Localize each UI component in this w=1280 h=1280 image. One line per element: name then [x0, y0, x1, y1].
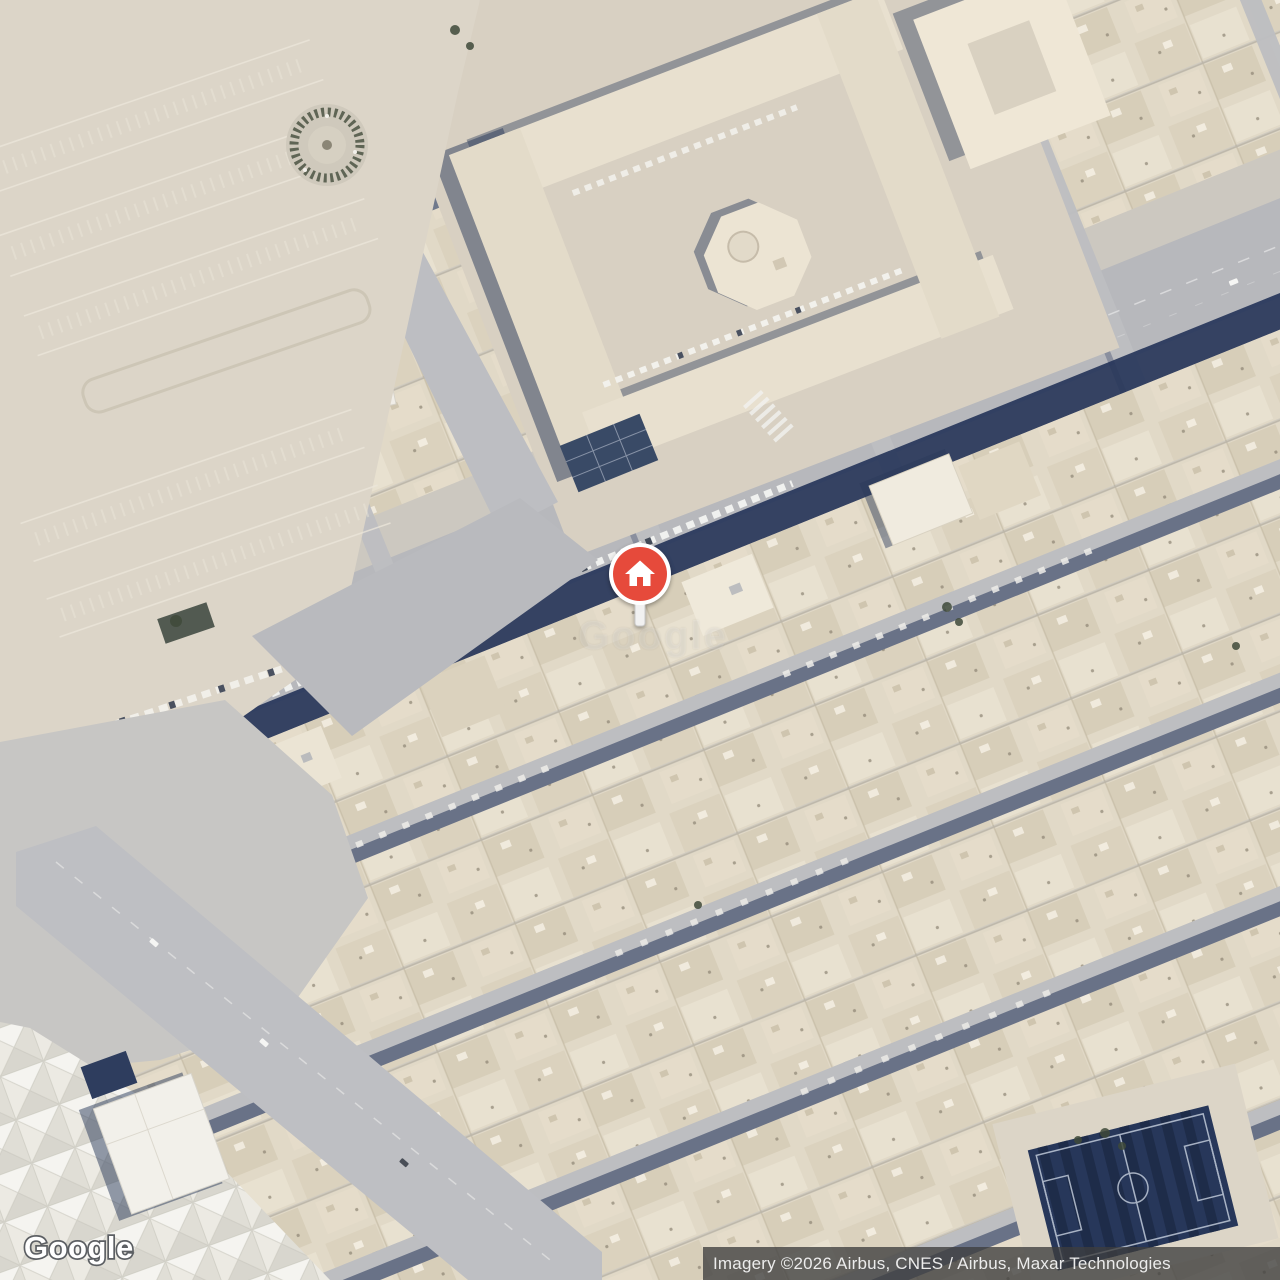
roundabout	[286, 104, 368, 186]
map-marker[interactable]	[602, 540, 678, 636]
map-attribution: Imagery ©2026 Airbus, CNES / Airbus, Max…	[703, 1247, 1280, 1280]
google-logo-text: Google	[24, 1230, 134, 1265]
map-canvas[interactable]: Google Google Imagery ©2026 Airbus, CNES…	[0, 0, 1280, 1280]
google-logo[interactable]: Google	[20, 1224, 170, 1270]
attribution-text: Imagery ©2026 Airbus, CNES / Airbus, Max…	[713, 1254, 1171, 1274]
